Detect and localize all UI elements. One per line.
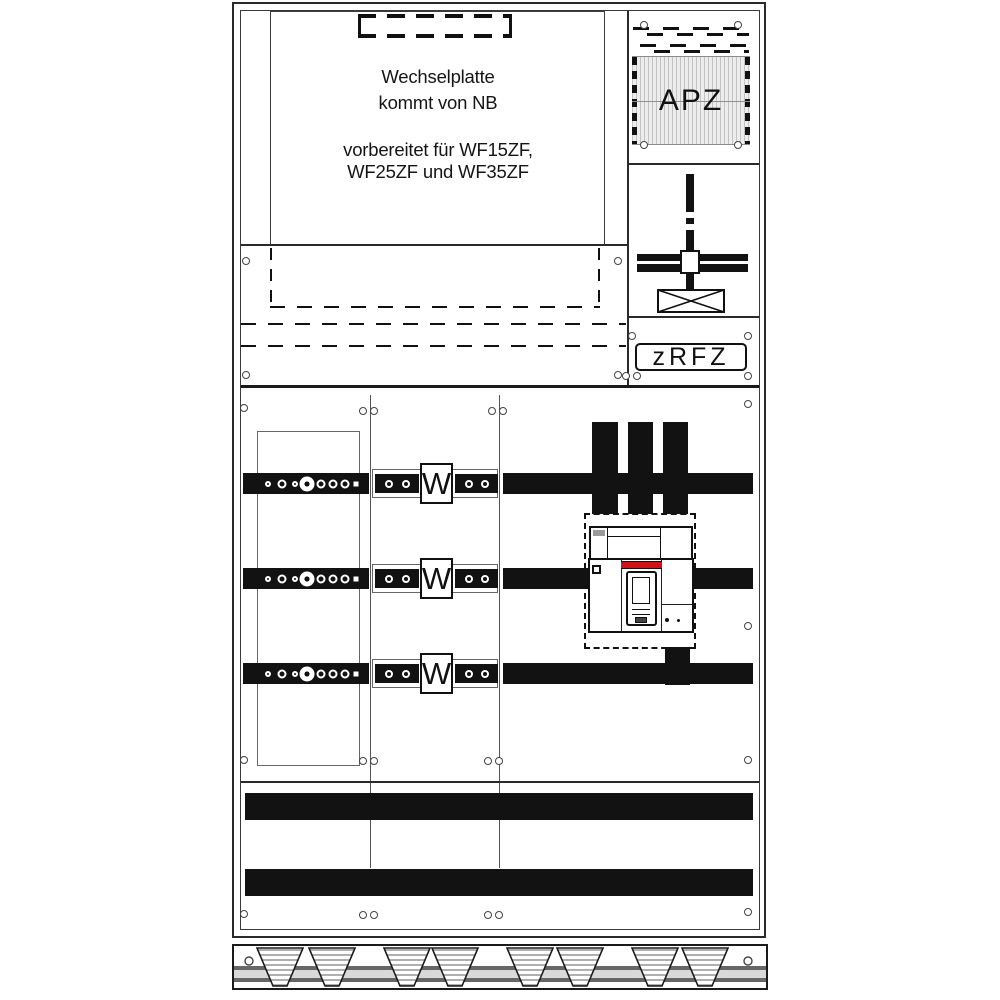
cable-gland-base [232, 944, 768, 990]
busbar-row2-left [243, 568, 369, 589]
terminal-hole [402, 480, 410, 488]
busbar-row3-segB [455, 664, 498, 683]
gland-hole [744, 957, 752, 965]
dashed-plate-bottom [270, 306, 600, 308]
terminal-hole [292, 576, 298, 582]
handle-latch [635, 617, 647, 623]
breaker-dot [665, 618, 669, 622]
terminal-block-cap [593, 530, 605, 536]
screw [359, 757, 367, 765]
screw [240, 404, 248, 412]
terminal-hole [329, 669, 338, 678]
screw [499, 407, 507, 415]
terminal-hole [292, 671, 298, 677]
screw [359, 407, 367, 415]
terminal-square [354, 481, 359, 486]
screw [744, 372, 752, 380]
screw [622, 372, 630, 380]
feeder-bar-2 [628, 422, 653, 514]
screw [744, 622, 752, 630]
midsection-dash-line-1 [241, 323, 626, 325]
breaker-terminal-block [589, 526, 693, 560]
terminal-hole-large [300, 476, 315, 491]
terminal-divider [660, 528, 661, 558]
screw [628, 332, 636, 340]
handle-window [632, 577, 650, 604]
screw [744, 400, 752, 408]
busbar-row3-right [503, 663, 753, 684]
cross-vertical-gap [686, 224, 694, 230]
terminal-hole [317, 669, 326, 678]
screw [744, 332, 752, 340]
screw [614, 257, 622, 265]
dashed-plate-left [270, 248, 272, 306]
crossed-box-icon [657, 289, 725, 313]
zrfz-label: zRFZ [652, 345, 729, 370]
meter-symbol-3: W [420, 653, 453, 694]
terminal-hole [265, 481, 271, 487]
terminal-square [354, 576, 359, 581]
apz-label: APZ [632, 57, 750, 144]
wiring-cabinet-drawing: Wechselplatte kommt von NB vorbereitet f… [0, 0, 1000, 1000]
cross-vertical-gap [686, 212, 694, 218]
meter-symbol-2: W [420, 558, 453, 599]
breaker-left-port [592, 565, 601, 574]
screw [240, 756, 248, 764]
terminal-hole [329, 574, 338, 583]
terminal-hole [292, 481, 298, 487]
cutout-top-dashes [358, 14, 512, 18]
terminal-hole [385, 575, 393, 583]
terminal-hole-large [300, 666, 315, 681]
terminal-divider [607, 528, 608, 558]
screw [495, 757, 503, 765]
terminal-hole-large [300, 571, 315, 586]
swap-plate-note-line1: Wechselplatte [288, 66, 588, 88]
handle-line [632, 614, 650, 615]
screw [370, 911, 378, 919]
terminal-hole [465, 575, 473, 583]
terminal-hole [278, 479, 287, 488]
screw [240, 910, 248, 918]
screw [633, 372, 641, 380]
breaker-output-bar [665, 647, 690, 685]
terminal-hole [465, 480, 473, 488]
busbar-row3-left [243, 663, 369, 684]
terminal-hole [265, 576, 271, 582]
meter-symbol-1: W [420, 463, 453, 504]
dashed-plate-right [598, 248, 600, 306]
breaker-right-line [662, 604, 692, 605]
screw [640, 21, 648, 29]
meter-label: W [422, 656, 451, 692]
lower-section-line [241, 781, 759, 783]
terminal-hole [402, 670, 410, 678]
swap-plate-note-line2: kommt von NB [288, 92, 588, 114]
midsection-dashed-plate [270, 246, 600, 308]
breaker-red-stripe [621, 561, 662, 569]
screw [734, 21, 742, 29]
screw [614, 371, 622, 379]
terminal-hole [385, 670, 393, 678]
main-separator-line [241, 385, 759, 388]
terminal-hole [481, 480, 489, 488]
gland-hole [245, 957, 253, 965]
screw [488, 407, 496, 415]
busbar-row3-segA [375, 664, 419, 683]
swap-plate-note-line4: WF25ZF und WF35ZF [288, 161, 588, 183]
apz-module: APZ [632, 56, 750, 145]
terminal-hole [341, 479, 350, 488]
terminal-hole [341, 669, 350, 678]
swap-plate-note-line3: vorbereitet für WF15ZF, [288, 139, 588, 161]
swap-plate-dashed-cutout [358, 14, 512, 38]
handle-line [632, 609, 650, 610]
feeder-bar-1 [592, 422, 618, 514]
terminal-hole [481, 575, 489, 583]
swap-plate-field [270, 11, 605, 245]
terminal-hole [329, 479, 338, 488]
screw [495, 911, 503, 919]
screw [484, 757, 492, 765]
terminal-hole [278, 574, 287, 583]
zrfz-section-top-line [629, 316, 759, 318]
terminal-hole [341, 574, 350, 583]
breaker-handle [626, 571, 657, 626]
terminal-hole [481, 670, 489, 678]
terminal-hole [317, 479, 326, 488]
terminal-hole [385, 480, 393, 488]
terminal-hole [317, 574, 326, 583]
drill-template-icon [627, 165, 758, 316]
terminal-mid-line [607, 536, 660, 537]
zrfz-module: zRFZ [635, 343, 747, 371]
terminal-hole [465, 670, 473, 678]
busbar-row2-segB [455, 569, 498, 588]
screw [242, 371, 250, 379]
terminal-hole [402, 575, 410, 583]
terminal-hole [278, 669, 287, 678]
screw [370, 407, 378, 415]
screw [744, 908, 752, 916]
screw [484, 911, 492, 919]
screw [744, 756, 752, 764]
cutout-left-edge [358, 14, 361, 38]
midsection-dash-line-2 [241, 345, 626, 347]
din-rail-top-2 [633, 44, 749, 53]
screw [359, 911, 367, 919]
busbar-row1-segA [375, 474, 419, 493]
feeder-bar-3 [663, 422, 688, 514]
screw [370, 757, 378, 765]
busbar-row1-segB [455, 474, 498, 493]
screw [640, 141, 648, 149]
screw [734, 141, 742, 149]
gland-plate-graphic [234, 946, 766, 988]
bottom-busbar-1 [245, 793, 753, 820]
circuit-breaker-body [588, 558, 694, 633]
busbar-row1-left [243, 473, 369, 494]
cutout-bottom-dashes [358, 34, 512, 38]
cutout-right-edge [509, 14, 512, 38]
busbar-row2-segA [375, 569, 419, 588]
terminal-square [354, 671, 359, 676]
screw [242, 257, 250, 265]
bottom-busbar-2 [245, 869, 753, 896]
din-rail-top [633, 27, 749, 36]
meter-label: W [422, 561, 451, 597]
cross-center-square [680, 250, 700, 274]
breaker-dot [677, 619, 680, 622]
terminal-hole [265, 671, 271, 677]
meter-label: W [422, 466, 451, 502]
